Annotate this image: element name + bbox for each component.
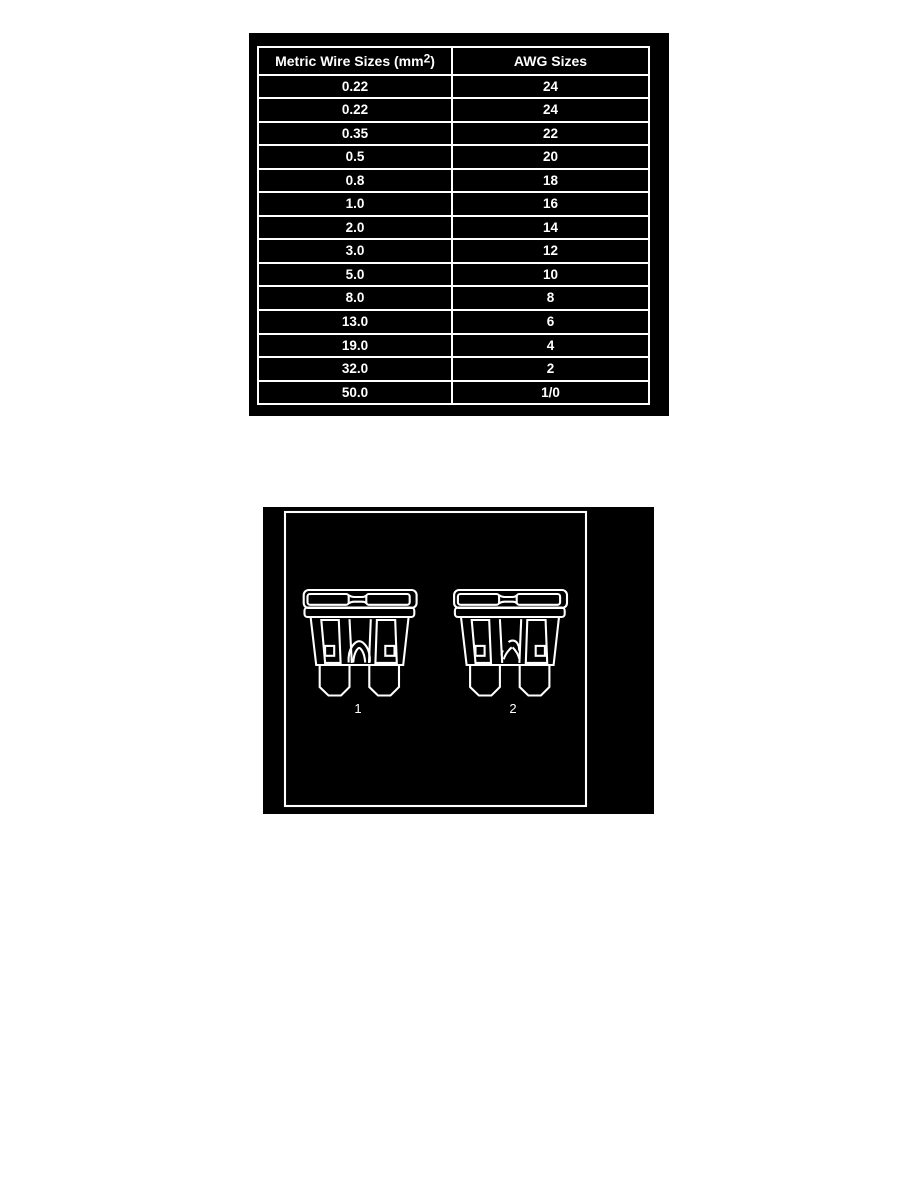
svg-text:1: 1	[354, 701, 361, 716]
svg-text:2: 2	[509, 701, 516, 716]
